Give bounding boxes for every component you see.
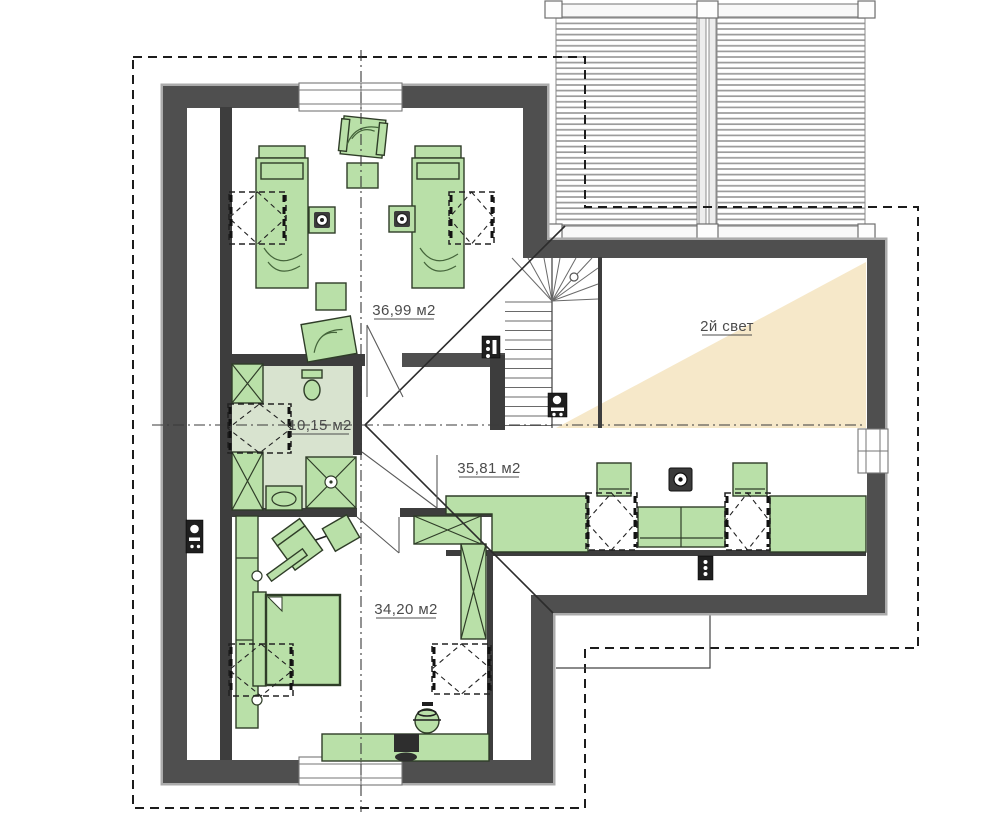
bed: [412, 146, 464, 288]
roof-window: [586, 493, 637, 550]
bed: [253, 592, 340, 686]
room-label-lounge: 35,81 м2: [457, 460, 521, 477]
pot: [413, 702, 441, 733]
room-label-bathroom: 10,15 м2: [288, 417, 352, 434]
door-swing: [357, 517, 399, 553]
pergola-slat-panel-right: [717, 17, 865, 229]
shower: [306, 457, 356, 508]
ceiling-light-icon: [389, 206, 415, 232]
desk-and-chair: [267, 515, 360, 581]
wall-right-upper: [523, 86, 547, 257]
sink: [266, 486, 302, 510]
window-right: [858, 429, 888, 473]
cabinet: [770, 496, 866, 552]
coffee-table: [316, 283, 346, 310]
electrical-panel-icon: [482, 336, 500, 358]
sofa: [638, 507, 725, 547]
vent-icon: [698, 556, 713, 580]
room-label-top-bedroom: 36,99 м2: [372, 302, 436, 319]
wall-stair-corridor: [490, 355, 505, 430]
pergola-center-rail: [709, 4, 716, 238]
armchair: [301, 316, 357, 362]
stairwell-rail: [598, 257, 602, 428]
window-top: [299, 83, 402, 111]
ceiling-light-icon: [309, 207, 335, 233]
electrical-panel-icon: [186, 520, 203, 553]
wall-right-lower: [531, 595, 553, 783]
armchair: [597, 463, 631, 496]
roof-window: [432, 644, 491, 694]
ceiling-light-icon: [669, 468, 692, 491]
side-table: [347, 163, 378, 188]
floor-plan-page: 36,99 м2 10,15 м2 35,81 м2 34,20 м2 2й с…: [0, 0, 1000, 822]
armchair: [733, 463, 767, 496]
roof-window: [725, 493, 770, 550]
stair-treads: [505, 302, 552, 426]
bed: [256, 146, 308, 288]
wing-wall-right: [867, 240, 885, 613]
door-swing: [367, 325, 403, 397]
pergola-center-rail: [699, 4, 706, 238]
electrical-panel-icon: [548, 393, 567, 417]
toilet: [302, 370, 322, 400]
room-label-bottom-bedroom: 34,20 м2: [374, 601, 438, 618]
knee-wall-right-bottomroom: [487, 553, 493, 760]
pergola-post: [858, 1, 875, 18]
wardrobe: [232, 364, 263, 403]
lower-roof-outline: [556, 613, 710, 668]
pergola-post: [697, 1, 718, 18]
wing-wall-top: [523, 240, 885, 258]
pergola-post: [545, 1, 562, 18]
terrace-pergola: [545, 1, 875, 241]
room-top-bedroom: [256, 116, 464, 362]
newel-post: [570, 273, 578, 281]
void-light-beam: [556, 262, 866, 428]
wardrobe: [461, 544, 486, 639]
stair-winders: [512, 258, 598, 301]
pergola-slat-panel-left: [556, 17, 697, 229]
void-label: 2й свет: [700, 318, 754, 335]
wall-left: [163, 86, 187, 783]
floor-plan-canvas: 36,99 м2 10,15 м2 35,81 м2 34,20 м2 2й с…: [0, 0, 1000, 822]
wardrobe: [232, 452, 263, 510]
armchair: [338, 116, 388, 159]
tv: [394, 734, 419, 762]
roof-valley-line: [365, 226, 565, 425]
wing-wall-bottom: [531, 595, 885, 613]
